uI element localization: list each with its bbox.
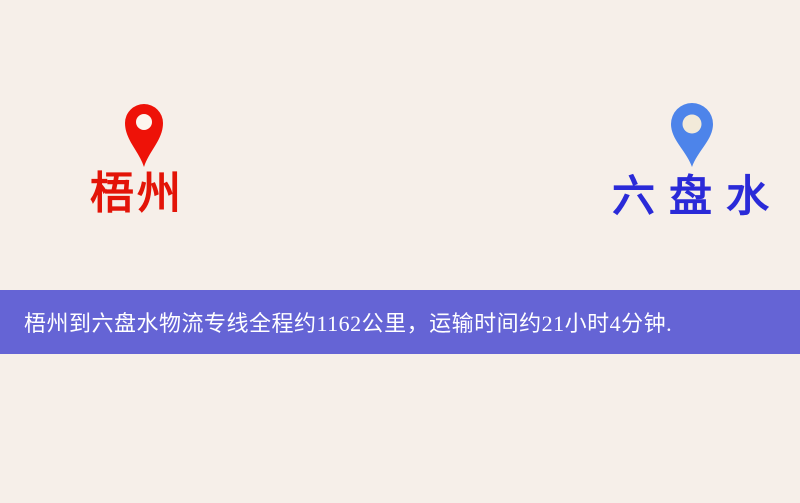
destination-pin-shape [671,103,713,167]
origin-pin-hole [136,114,152,130]
map-screenshot: 梧州 六盘水 梧州到六盘水物流专线全程约1162公里，运输时间约21小时4分钟. [0,0,800,503]
destination-pin-hole [683,115,702,134]
map-canvas[interactable] [0,0,800,503]
origin-label: 梧州 [90,172,184,216]
route-info-text: 梧州到六盘水物流专线全程约1162公里，运输时间约21小时4分钟. [0,306,672,338]
destination-pin[interactable] [671,103,713,167]
route-info-banner: 梧州到六盘水物流专线全程约1162公里，运输时间约21小时4分钟. [0,290,800,354]
origin-pin-shape [125,104,163,167]
destination-label: 六盘水 [612,176,783,219]
origin-pin[interactable] [125,104,163,167]
